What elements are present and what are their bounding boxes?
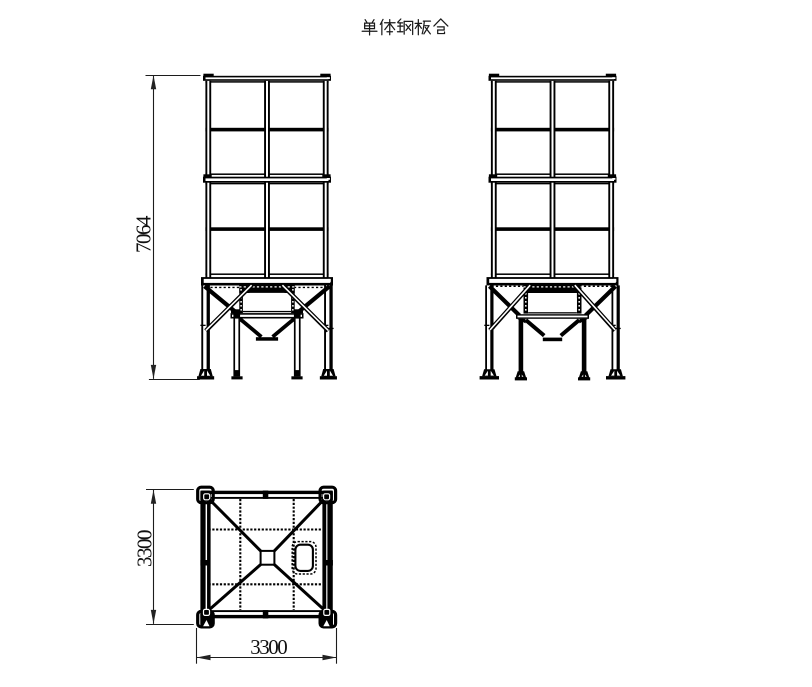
svg-text:3300: 3300 [133, 530, 157, 567]
svg-text:7064: 7064 [132, 215, 156, 253]
svg-text:3300: 3300 [250, 635, 287, 659]
